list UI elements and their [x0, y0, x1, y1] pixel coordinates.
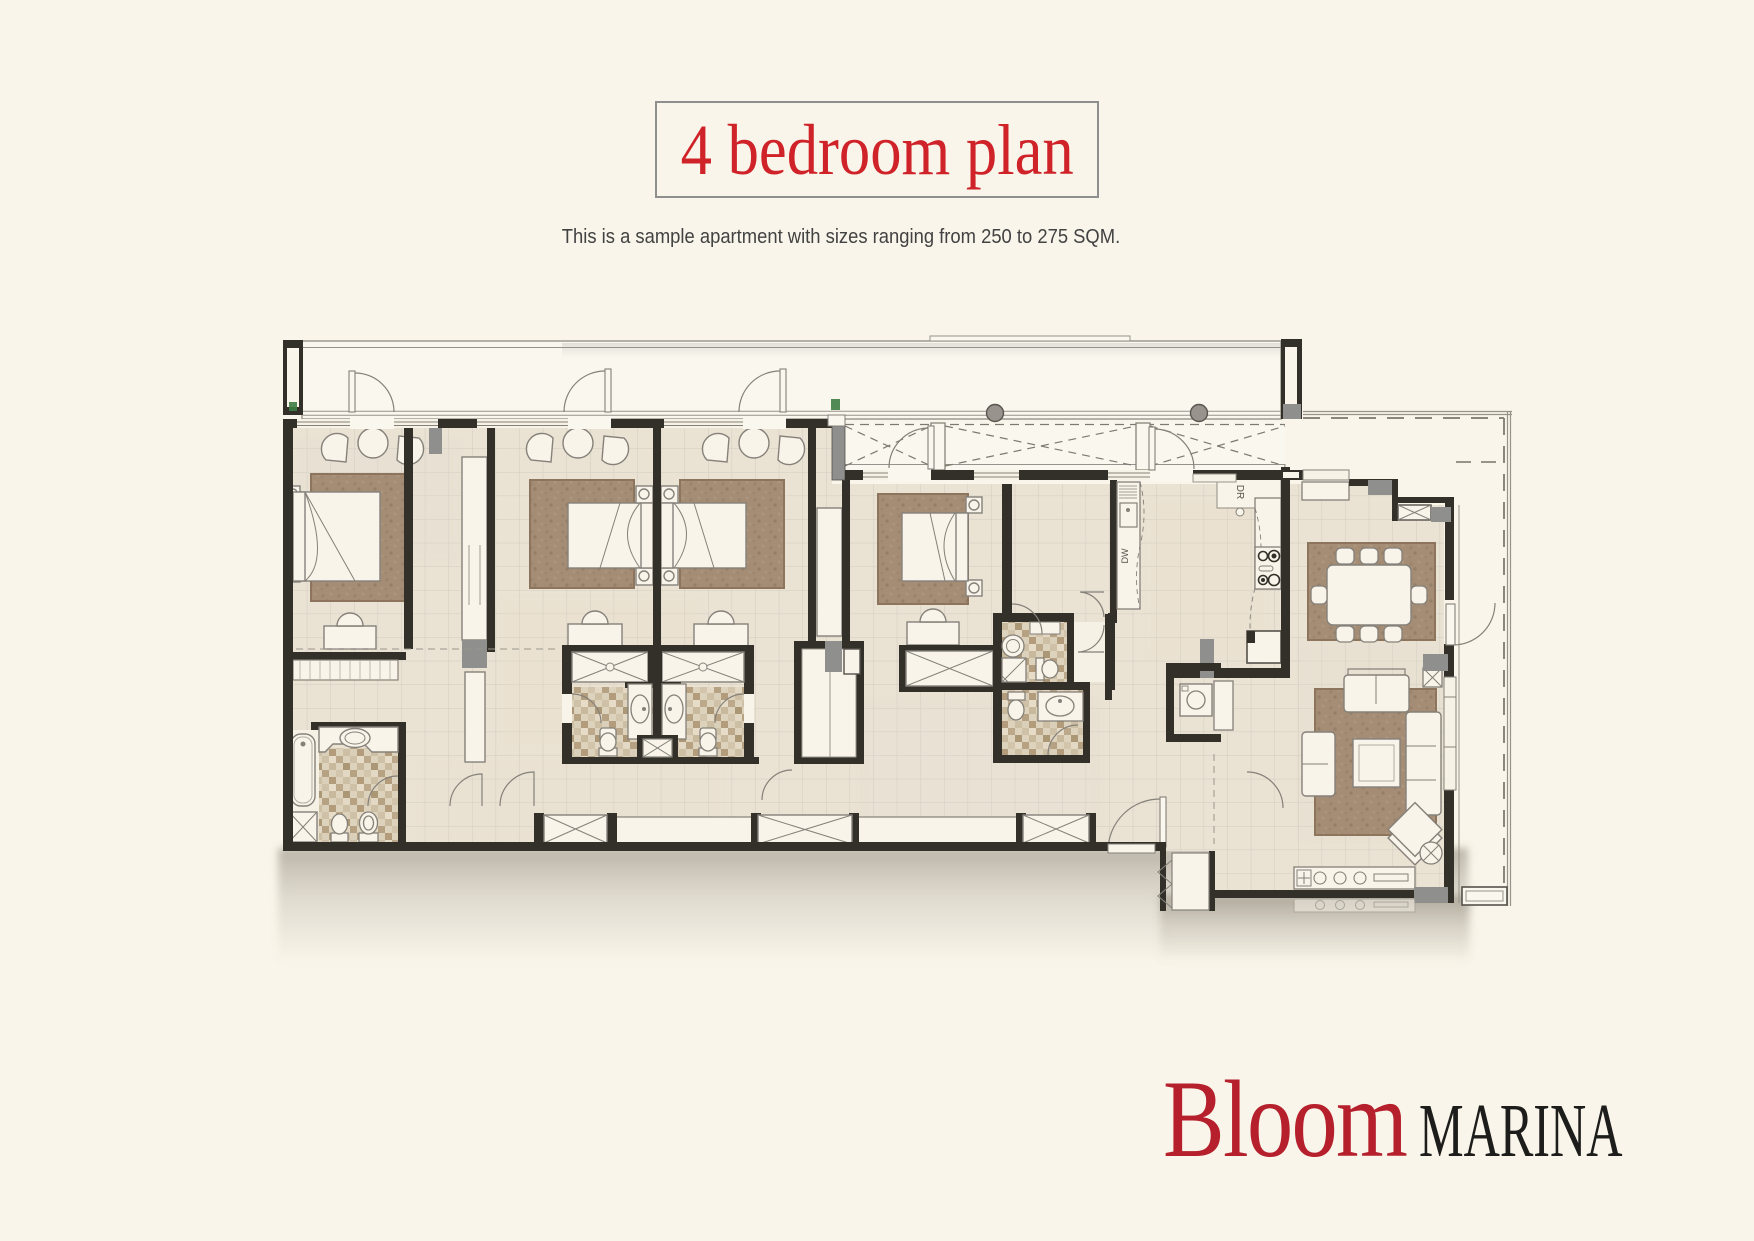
- svg-text:DW: DW: [1120, 548, 1130, 563]
- svg-text:DR: DR: [1234, 485, 1245, 499]
